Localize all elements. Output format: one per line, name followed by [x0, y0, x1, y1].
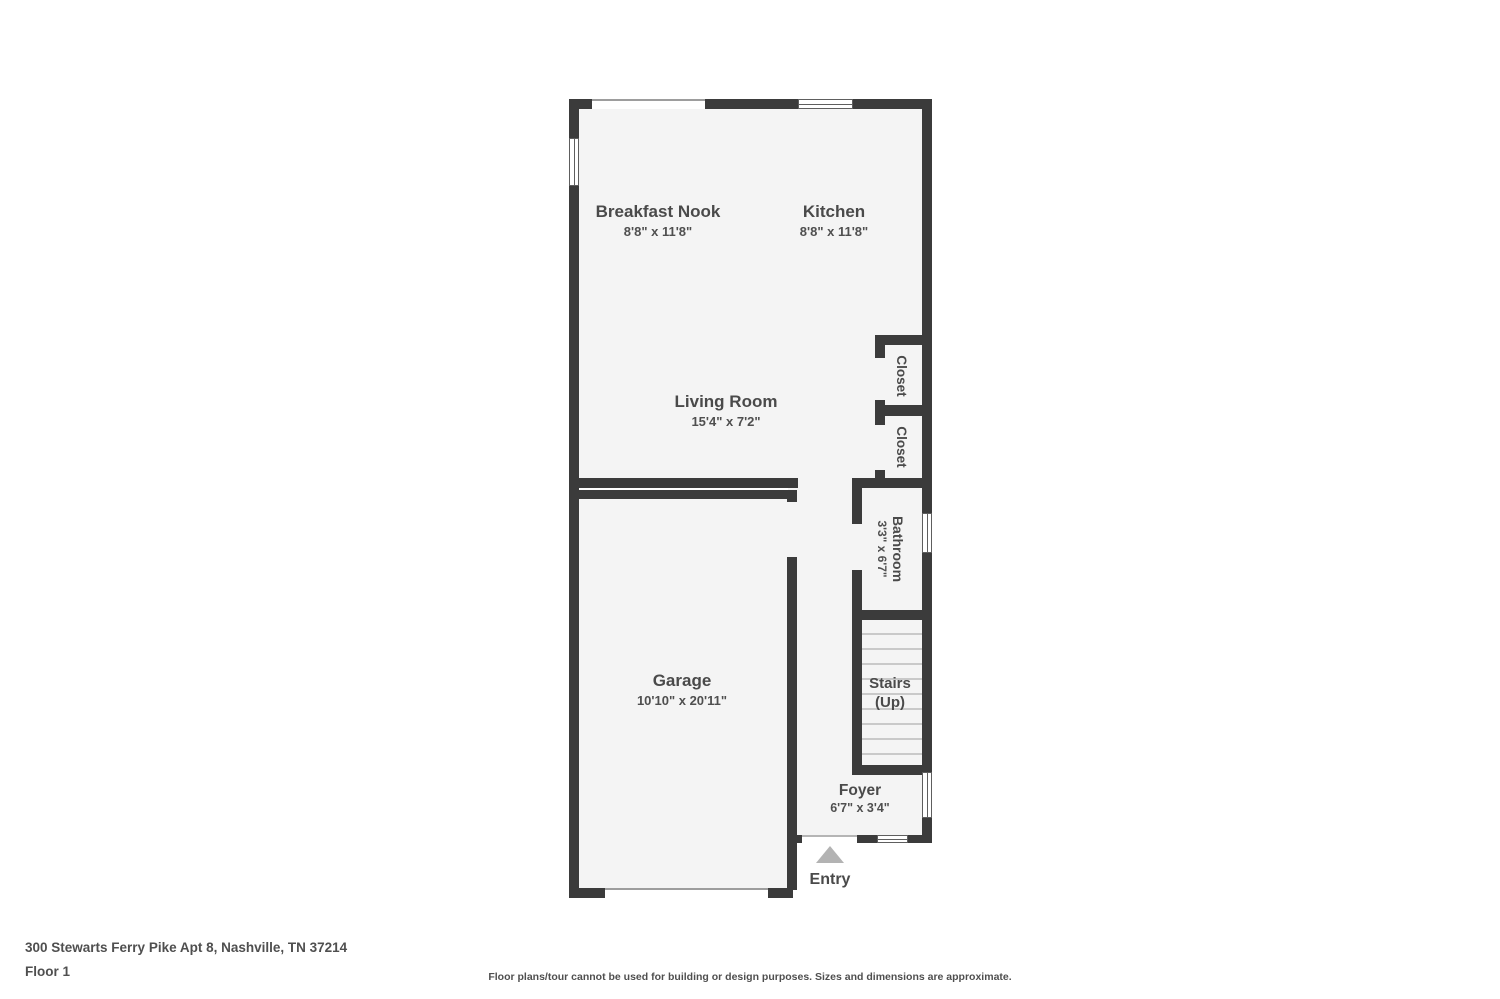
wall-stairs-bottom: [852, 765, 932, 775]
bathroom-label: Bathroom 3'3" x 6'7": [874, 489, 906, 609]
kitchen-dims: 8'8" x 11'8": [734, 224, 934, 240]
wall-foyer-bottom-mid: [857, 835, 877, 843]
closet-lower-label: Closet: [893, 402, 909, 492]
living-room-label: Living Room 15'4" x 7'2": [626, 391, 826, 431]
entry-arrow-icon: [816, 846, 844, 863]
wall-garage-top: [579, 490, 797, 499]
entry-door-opening: [802, 835, 857, 843]
foyer-front-window: [877, 835, 908, 843]
breakfast-nook-wall-opening: [592, 99, 705, 109]
living-room-name: Living Room: [626, 391, 826, 412]
entry-label: Entry: [780, 871, 880, 889]
bathroom-name: Bathroom: [889, 489, 906, 609]
wall-garage-bottom-left: [569, 888, 605, 898]
stairs-name: Stairs: [840, 675, 940, 694]
garage-door-opening: [605, 888, 768, 898]
wall-garage-right-upper: [787, 490, 797, 502]
breakfast-nook-window: [569, 138, 579, 186]
wall-garage-bottom-right: [768, 888, 793, 898]
kitchen-label: Kitchen 8'8" x 11'8": [734, 201, 934, 241]
floorplan-page: Breakfast Nook 8'8" x 11'8" Kitchen 8'8"…: [0, 0, 1500, 999]
living-room-dims: 15'4" x 7'2": [626, 414, 826, 430]
wall-bathroom-left-upper: [852, 478, 862, 524]
wall-bathroom-top: [852, 478, 932, 488]
garage-name: Garage: [582, 670, 782, 691]
garage-label: Garage 10'10" x 20'11": [582, 670, 782, 710]
breakfast-nook-dims: 8'8" x 11'8": [558, 224, 758, 240]
bathroom-window: [922, 513, 932, 553]
foyer-label: Foyer 6'7" x 3'4": [795, 781, 925, 817]
disclaimer-text: Floor plans/tour cannot be used for buil…: [0, 971, 1500, 983]
property-address: 300 Stewarts Ferry Pike Apt 8, Nashville…: [25, 940, 347, 955]
kitchen-window: [798, 99, 853, 109]
wall-foyer-bottom-left-stub: [788, 835, 802, 843]
breakfast-nook-name: Breakfast Nook: [558, 201, 758, 222]
wall-livingroom-bottom: [569, 478, 798, 488]
garage-dims: 10'10" x 20'11": [582, 693, 782, 709]
breakfast-nook-label: Breakfast Nook 8'8" x 11'8": [558, 201, 758, 241]
stairs-label: Stairs (Up): [840, 675, 940, 713]
foyer-dims: 6'7" x 3'4": [795, 801, 925, 817]
wall-closet-left-upper: [875, 335, 885, 358]
bathroom-dims: 3'3" x 6'7": [875, 489, 889, 609]
foyer-name: Foyer: [795, 781, 925, 800]
stairs-direction: (Up): [840, 694, 940, 713]
wall-bathroom-bottom: [852, 610, 932, 620]
kitchen-name: Kitchen: [734, 201, 934, 222]
wall-foyer-bottom-right: [908, 835, 932, 843]
